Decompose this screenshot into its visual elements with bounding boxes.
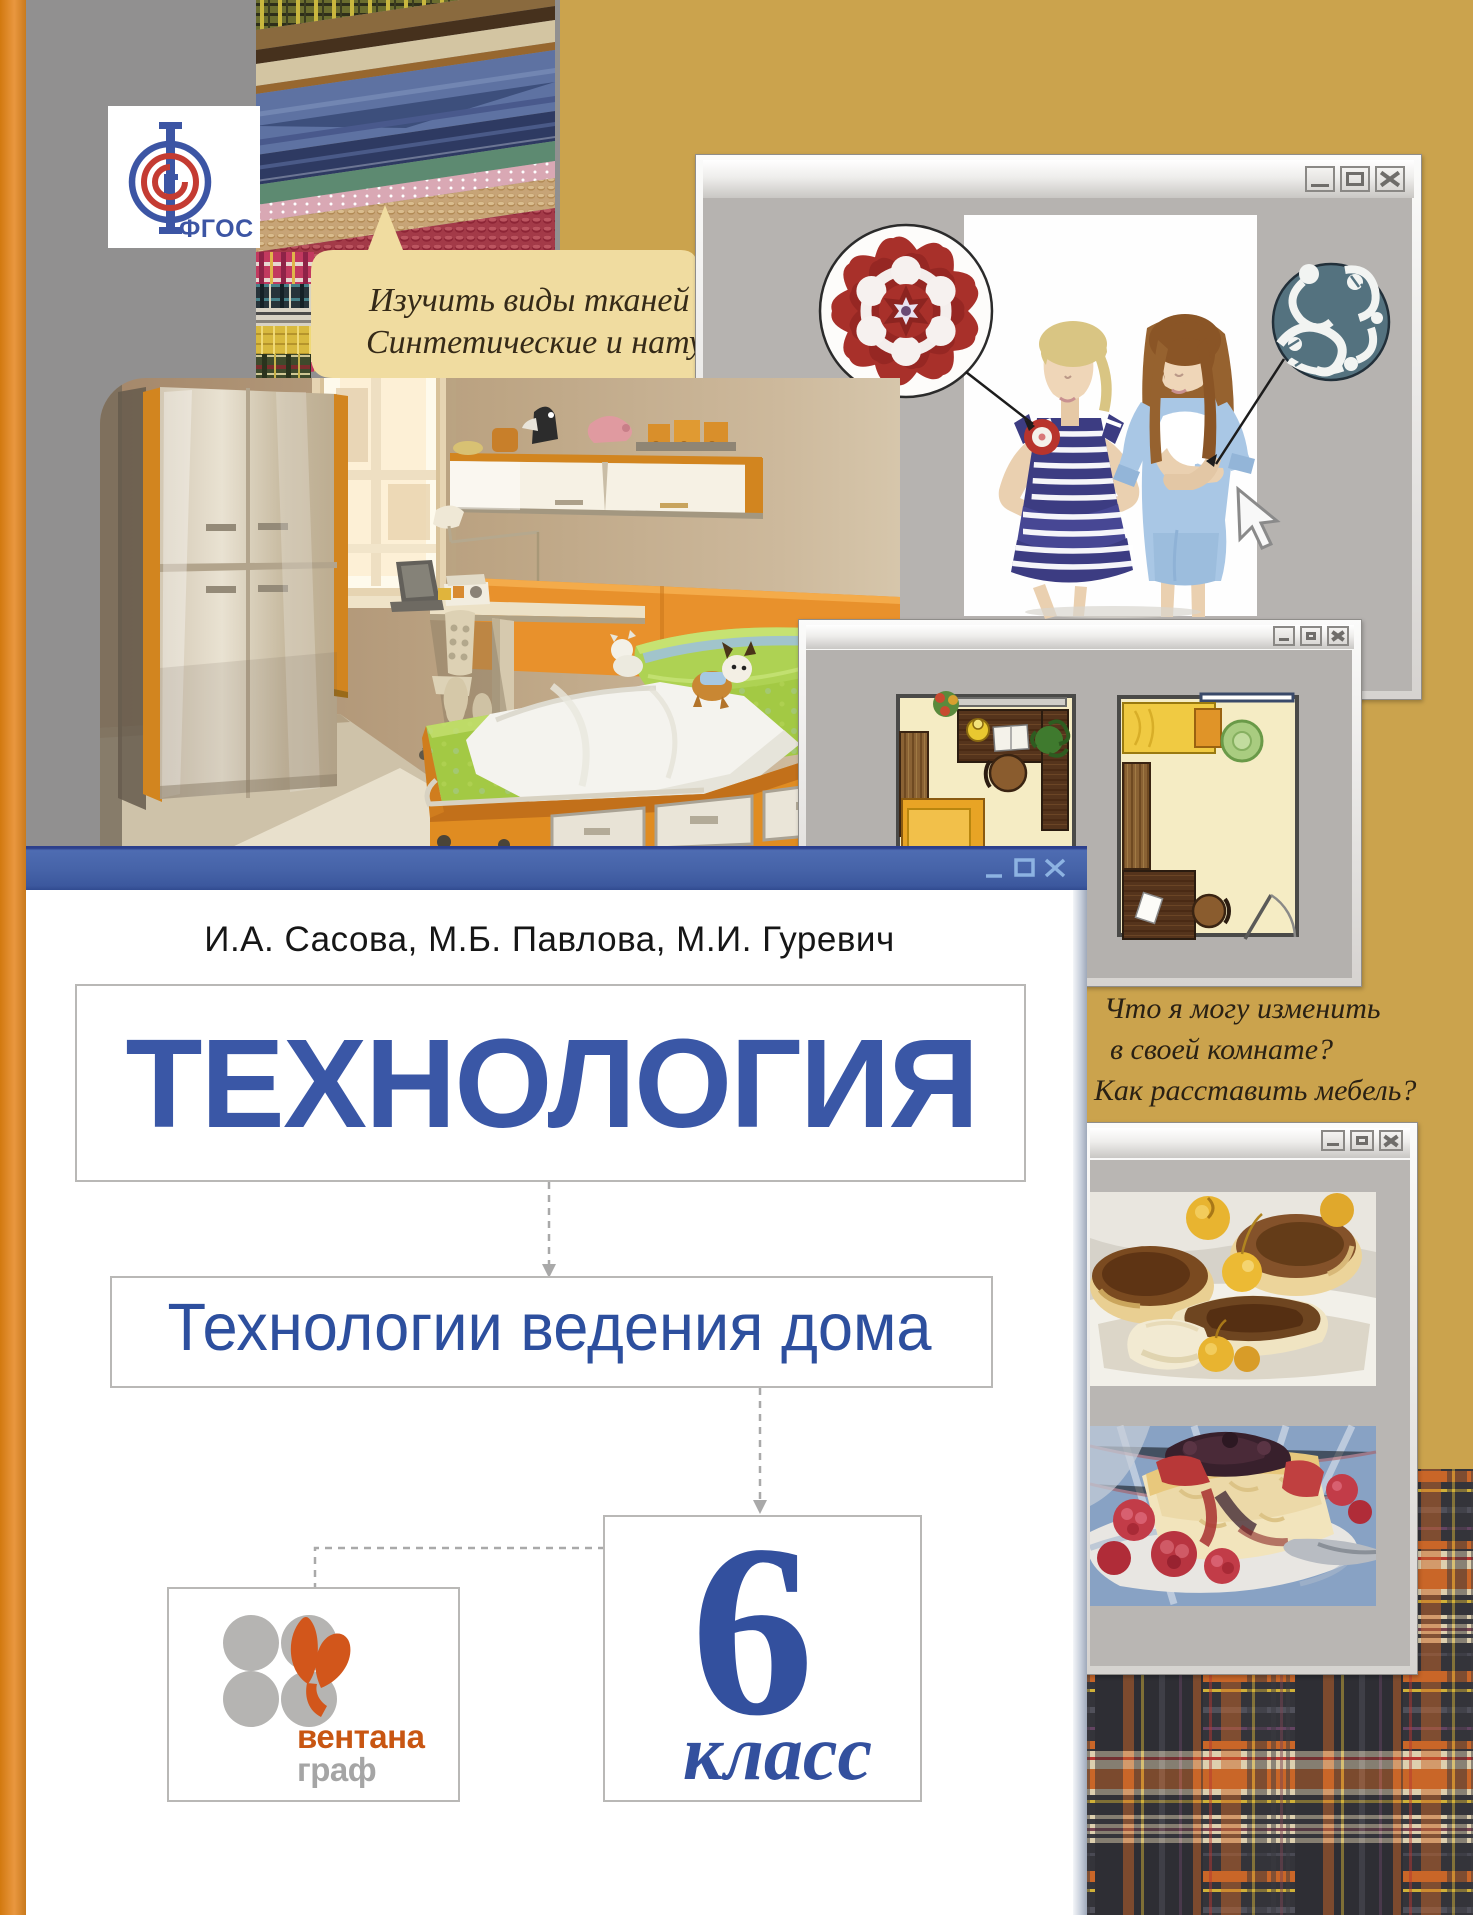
svg-text:Синтетические и натуральн: Синтетические и натуральн	[366, 324, 698, 361]
svg-text:граф: граф	[297, 1751, 376, 1788]
svg-text:Изучить виды тканей: Изучить виды тканей	[368, 282, 689, 319]
svg-text:ФГОС: ФГОС	[179, 215, 254, 243]
svg-text:вентана: вентана	[297, 1718, 426, 1755]
